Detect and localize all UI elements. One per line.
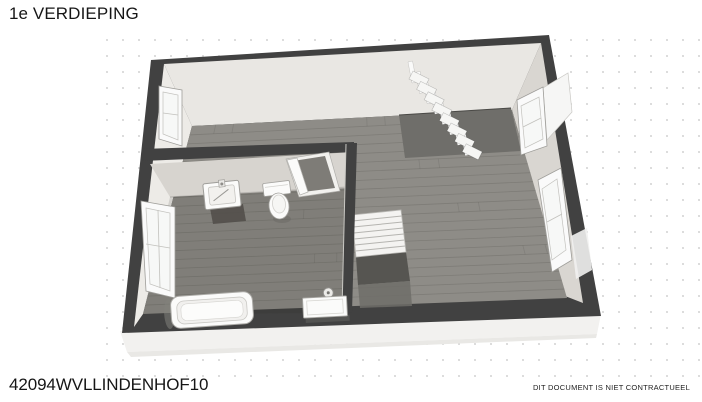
window-left-upper — [159, 86, 182, 146]
disclaimer-text: DIT DOCUMENT IS NIET CONTRACTUEEL — [533, 383, 690, 392]
floorplan-3d-render — [0, 0, 702, 402]
bathtub — [163, 291, 254, 329]
floorplan-page: 1e VERDIEPING 42094WVLLINDENHOF10 DIT DO… — [0, 0, 702, 402]
document-code: 42094WVLLINDENHOF10 — [9, 375, 208, 395]
floor-title: 1e VERDIEPING — [9, 4, 139, 24]
window-left-bathroom — [141, 201, 175, 298]
staircase-lower — [352, 210, 412, 308]
